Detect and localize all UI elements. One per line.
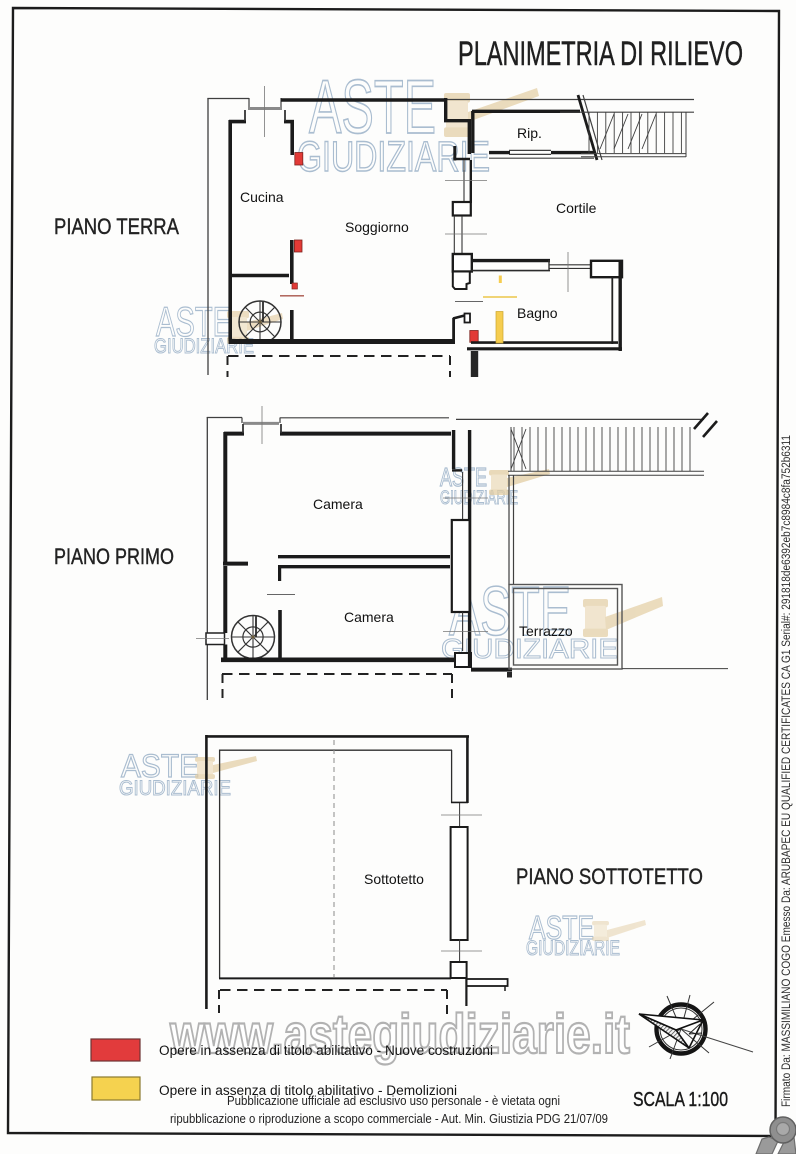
svg-text:PLANIMETRIA DI RILIEVO: PLANIMETRIA DI RILIEVO	[458, 35, 743, 73]
svg-text:Soggiorno: Soggiorno	[345, 219, 409, 235]
svg-text:ripubblicazione o riproduzione: ripubblicazione o riproduzione a scopo c…	[170, 1111, 608, 1126]
svg-text:Sottotetto: Sottotetto	[364, 871, 424, 887]
svg-text:Cucina: Cucina	[240, 189, 284, 205]
svg-text:PIANO SOTTOTETTO: PIANO SOTTOTETTO	[516, 864, 703, 889]
svg-text:Opere in assenza di titolo abi: Opere in assenza di titolo abilitativo -…	[159, 1043, 493, 1058]
svg-text:Terrazzo: Terrazzo	[519, 623, 573, 639]
svg-text:SCALA 1:100: SCALA 1:100	[633, 1088, 728, 1111]
svg-text:Bagno: Bagno	[517, 305, 558, 321]
svg-text:PIANO TERRA: PIANO TERRA	[54, 214, 179, 239]
svg-text:Camera: Camera	[344, 609, 394, 625]
svg-text:Firmato Da: MASSIMILIANO COGO: Firmato Da: MASSIMILIANO COGO Emesso Da:…	[781, 435, 793, 1107]
svg-text:Camera: Camera	[313, 496, 363, 512]
svg-text:Pubblicazione ufficiale ad esc: Pubblicazione ufficiale ad esclusivo uso…	[227, 1093, 560, 1108]
svg-text:PIANO PRIMO: PIANO PRIMO	[54, 544, 174, 569]
svg-text:Rip.: Rip.	[517, 125, 542, 141]
svg-text:GIUDIZIARIE: GIUDIZIARIE	[297, 133, 490, 181]
svg-text:Cortile: Cortile	[556, 200, 597, 216]
svg-text:GIUDIZIARIE: GIUDIZIARIE	[119, 777, 231, 800]
